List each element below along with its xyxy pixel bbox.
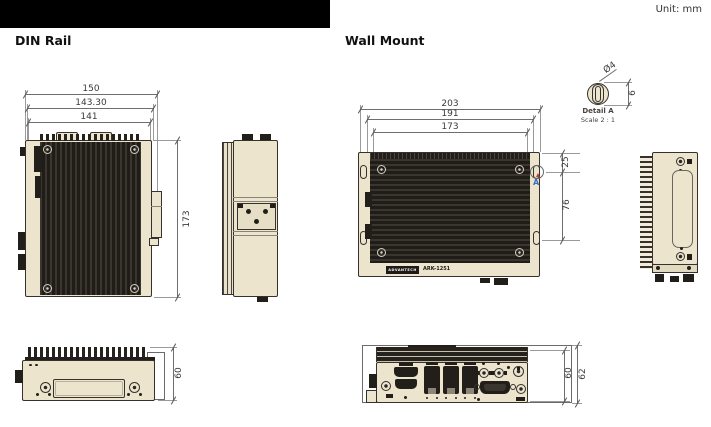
screw-dot — [35, 364, 38, 366]
brand-logo-box: ADVANTECH — [386, 266, 419, 274]
heatsink-fins — [370, 159, 530, 263]
dim-label-6: 6 — [628, 86, 638, 100]
section-title-din-rail: DIN Rail — [15, 33, 125, 48]
mechanical-drawing-page: Unit: mm DIN Rail Wall Mount 150 143.30 … — [0, 0, 711, 427]
dim-label-173-depth: 173 — [182, 204, 192, 234]
corner-screw — [377, 248, 386, 257]
db9-pins — [484, 384, 506, 391]
detail-slot-inner — [595, 86, 601, 102]
detail-a-title: Detail A — [577, 107, 619, 115]
lan-led — [474, 397, 476, 399]
bracket-screw — [246, 209, 251, 214]
base-screw — [687, 266, 691, 270]
dim-label-60-din: 60 — [174, 360, 184, 386]
screw-dot — [48, 393, 51, 396]
thumb-screw — [676, 252, 685, 261]
bracket-line — [233, 235, 278, 236]
extension-line — [360, 105, 361, 152]
usb-port — [386, 394, 393, 398]
extension-line — [540, 105, 541, 152]
heatsink-fins — [40, 142, 141, 295]
lan-led — [426, 397, 428, 399]
bracket-clip — [238, 204, 243, 208]
dim-label-173-width: 173 — [420, 122, 480, 132]
screw-dot — [680, 247, 683, 250]
din-rail-clip — [151, 191, 162, 238]
dim-line — [27, 108, 153, 109]
hdmi-port — [394, 367, 418, 377]
antenna-connector — [494, 368, 504, 378]
lan-label-bar — [464, 362, 476, 365]
corner-screw — [43, 284, 52, 293]
hdmi-label-bar — [399, 362, 413, 366]
hdmi-port — [395, 379, 417, 389]
side-connector — [365, 192, 372, 207]
dim-label-143-30: 143.30 — [61, 98, 121, 108]
screw-dot — [127, 393, 130, 396]
side-connector — [365, 224, 372, 239]
bracket-screw — [263, 209, 268, 214]
bottom-foot — [480, 278, 490, 283]
side-model-label — [35, 176, 41, 198]
unit-label: Unit: mm — [630, 4, 702, 15]
panel-screw — [516, 384, 526, 394]
dim-label-191: 191 — [420, 109, 480, 119]
lan-led — [455, 397, 457, 399]
lan-latch — [428, 388, 436, 394]
detail-a-scale: Scale 2 : 1 — [575, 116, 621, 124]
bracket-clip — [270, 204, 275, 208]
usb-port — [516, 397, 525, 401]
extension-line — [25, 90, 26, 140]
heatsink-fin-tips — [40, 134, 141, 141]
antenna-dot — [497, 362, 500, 365]
side-connector — [18, 232, 25, 250]
side-brand-label — [34, 146, 42, 172]
lan-label-bar — [445, 362, 457, 365]
antenna-dot — [482, 362, 485, 365]
dim-line — [367, 119, 533, 120]
thumb-screw — [129, 382, 140, 393]
lan-latch — [447, 388, 455, 394]
dim-line — [25, 94, 157, 95]
dim-label-62-wall: 62 — [578, 361, 588, 387]
base-screw — [656, 266, 660, 270]
lan-led — [464, 397, 466, 399]
mount-ear — [366, 390, 377, 403]
mount-ear-slot — [533, 231, 540, 245]
led-indicator — [477, 398, 480, 401]
corner-screw — [515, 248, 524, 257]
corner-screw — [515, 165, 524, 174]
dim-label-76: 76 — [562, 194, 572, 216]
small-connector — [687, 254, 692, 260]
screw-dot — [29, 364, 32, 366]
bottom-foot — [494, 278, 508, 285]
din-rail-clip-hook — [149, 238, 159, 246]
expansion-cover-inner — [55, 381, 123, 396]
bracket-line — [233, 201, 278, 202]
foot — [655, 274, 664, 282]
corner-screw — [43, 145, 52, 154]
side-connector — [18, 254, 26, 270]
bracket-line — [233, 197, 278, 198]
redaction-bar — [0, 0, 330, 28]
lan-label-bar — [426, 362, 438, 365]
bracket-screw — [254, 219, 259, 224]
antenna-connector — [479, 368, 489, 378]
power-jack-notch — [517, 367, 520, 370]
dim-line — [373, 132, 527, 133]
extension-line — [157, 90, 158, 192]
corner-screw — [377, 165, 386, 174]
screw-dot — [139, 393, 142, 396]
dim-line — [177, 140, 178, 297]
led-indicator — [507, 366, 510, 369]
section-title-wall-mount: Wall Mount — [345, 33, 475, 48]
din-rail-clip-line — [151, 206, 162, 207]
bracket-line — [233, 231, 278, 232]
foot — [683, 274, 694, 282]
dim-label-141: 141 — [59, 112, 119, 122]
side-connector — [369, 374, 377, 388]
corner-screw — [130, 145, 139, 154]
panel-screw — [381, 381, 391, 391]
thumb-screw — [40, 382, 51, 393]
thumb-screw — [676, 157, 685, 166]
lan-led — [445, 397, 447, 399]
detail-marker: A — [533, 178, 543, 187]
bottom-connector — [670, 276, 679, 282]
power-connector — [15, 370, 23, 383]
lan-led — [436, 397, 438, 399]
expansion-cover — [672, 170, 693, 248]
dim-label-25: 25 — [561, 152, 571, 172]
fin-stack-front — [376, 347, 528, 362]
dim-label-203: 203 — [420, 99, 480, 109]
screw-dot — [36, 393, 39, 396]
led-indicator — [404, 396, 407, 399]
dim-line — [28, 122, 150, 123]
corner-screw — [130, 284, 139, 293]
dim-label-60-wall: 60 — [564, 360, 574, 386]
model-label: ARK-1251 — [423, 265, 469, 274]
side-connector — [20, 147, 25, 156]
dim-label-150: 150 — [61, 84, 121, 94]
detail-callout-arrow — [536, 173, 540, 177]
antenna-wing — [504, 371, 507, 375]
mount-ear-slot — [360, 165, 367, 179]
bottom-foot — [257, 297, 268, 302]
small-connector — [687, 159, 692, 164]
dim-label-dia4: Ø4 — [597, 57, 622, 79]
lan-latch — [466, 388, 474, 394]
